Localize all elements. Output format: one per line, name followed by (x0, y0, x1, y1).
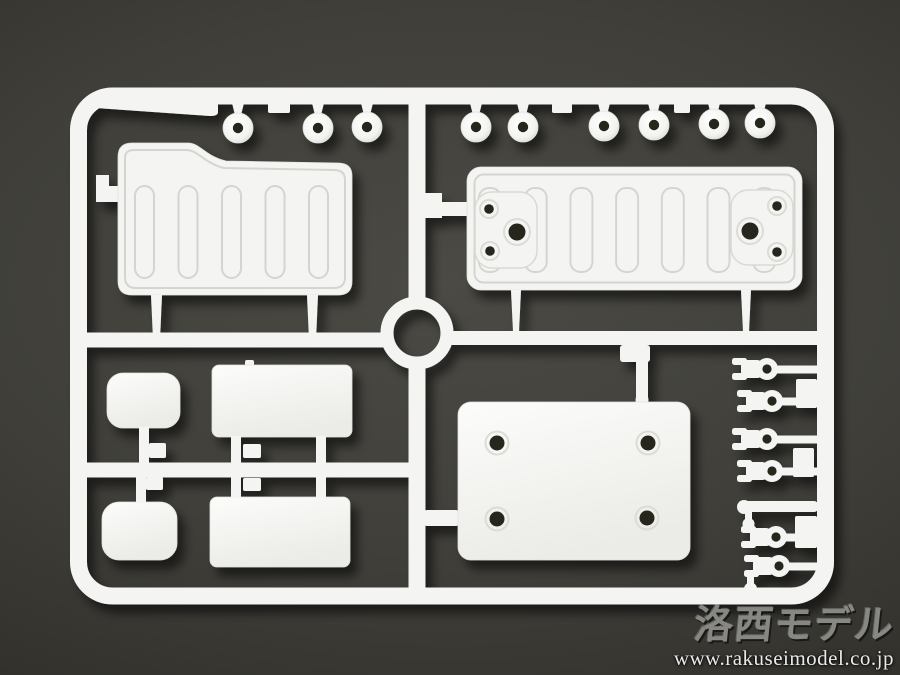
bushing-part (461, 103, 491, 142)
center-ring (387, 303, 447, 363)
bushing-part (508, 103, 538, 142)
four-hole-base-plate (424, 345, 690, 560)
watermark-logo-text: 洛西モデル (672, 606, 896, 646)
watermark-url-text: www.rakuseimodel.co.jp (674, 646, 894, 671)
bushing-part (589, 103, 619, 141)
fork-clip (732, 428, 818, 450)
watermark: 洛西モデル www.rakuseimodel.co.jp (674, 606, 894, 671)
bushing-part (745, 103, 775, 138)
sprue-photo (0, 0, 900, 675)
molding-tag (88, 99, 218, 116)
ribbed-panel-with-mount-holes (424, 167, 802, 332)
rectangular-plate (210, 497, 350, 567)
round-bushings (223, 103, 775, 143)
small-rounded-pad (102, 502, 177, 560)
small-rounded-pad (107, 373, 180, 428)
bushing-part (303, 103, 333, 143)
photo-stage: 洛西モデル www.rakuseimodel.co.jp (0, 0, 900, 675)
bushing-part (639, 103, 669, 140)
fork-clips (732, 358, 830, 596)
rectangular-plate (212, 365, 352, 437)
fork-clip (732, 358, 818, 380)
bushing-part (223, 103, 253, 143)
bushing-part (352, 103, 382, 142)
bushing-part (699, 103, 729, 139)
stepped-ribbed-panel (96, 143, 352, 340)
